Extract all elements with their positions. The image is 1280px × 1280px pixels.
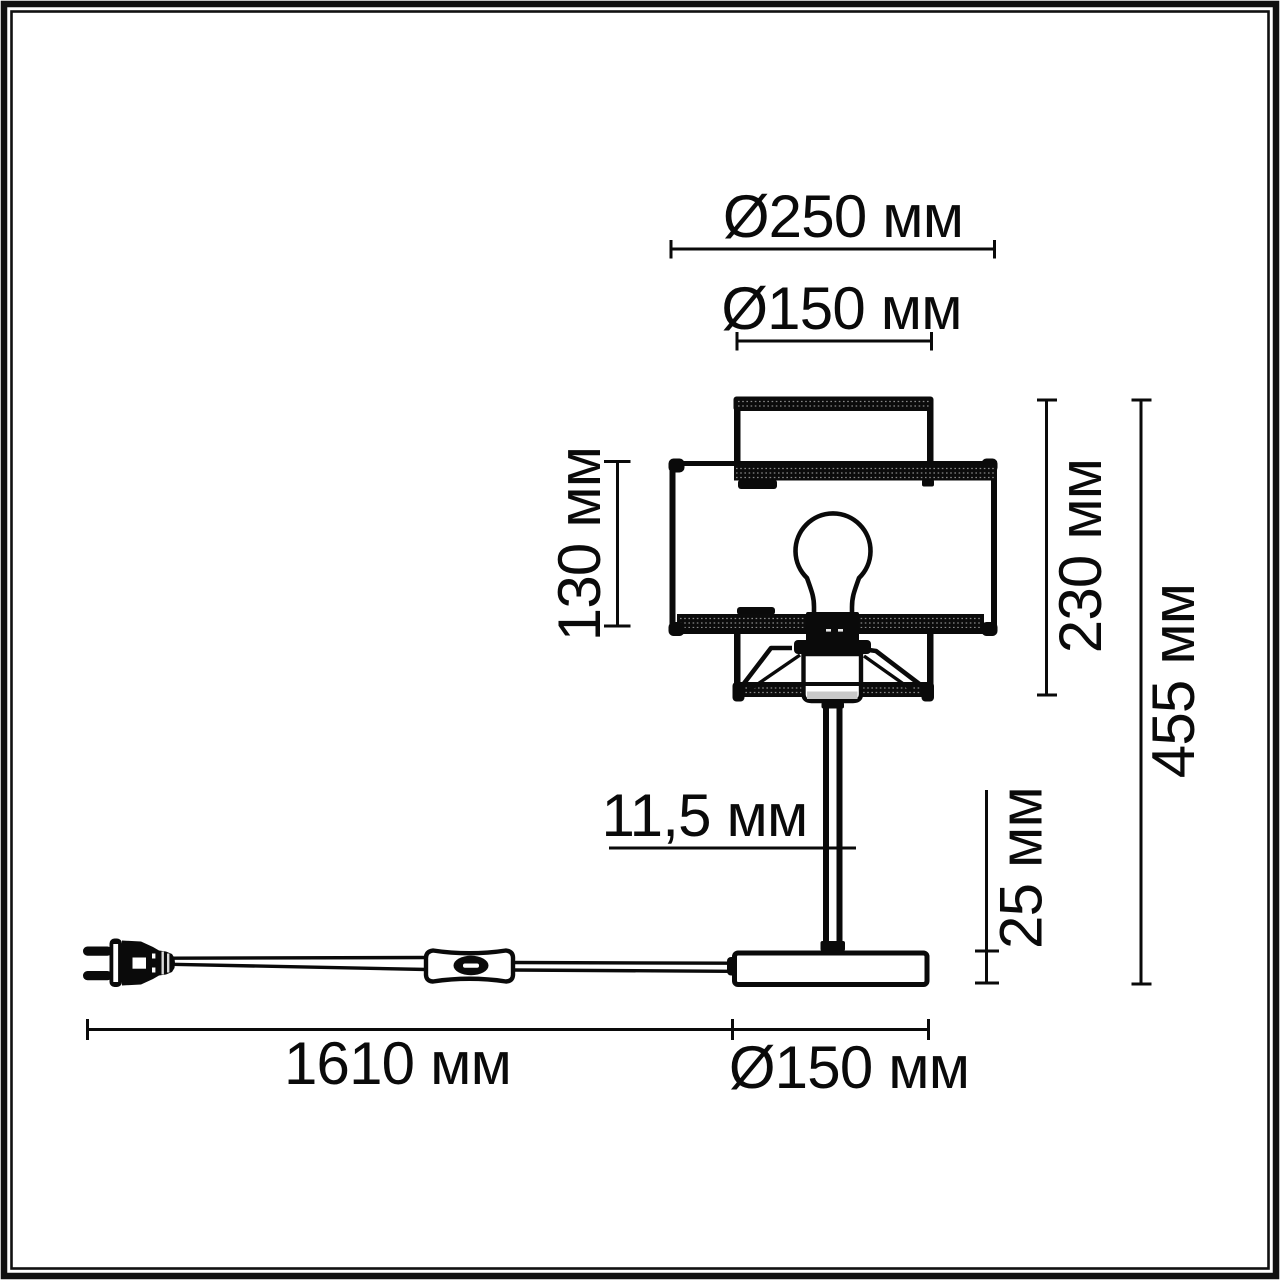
svg-text:Ø150 мм: Ø150 мм	[729, 1034, 969, 1101]
svg-text:1610 мм: 1610 мм	[284, 1030, 511, 1097]
svg-text:Ø250 мм: Ø250 мм	[723, 183, 963, 250]
svg-text:230 мм: 230 мм	[1047, 459, 1114, 653]
svg-text:130 мм: 130 мм	[546, 447, 613, 641]
svg-text:455 мм: 455 мм	[1140, 584, 1207, 778]
svg-text:25 мм: 25 мм	[988, 787, 1055, 949]
svg-text:Ø150 мм: Ø150 мм	[721, 275, 961, 342]
svg-text:11,5 мм: 11,5 мм	[602, 782, 808, 849]
